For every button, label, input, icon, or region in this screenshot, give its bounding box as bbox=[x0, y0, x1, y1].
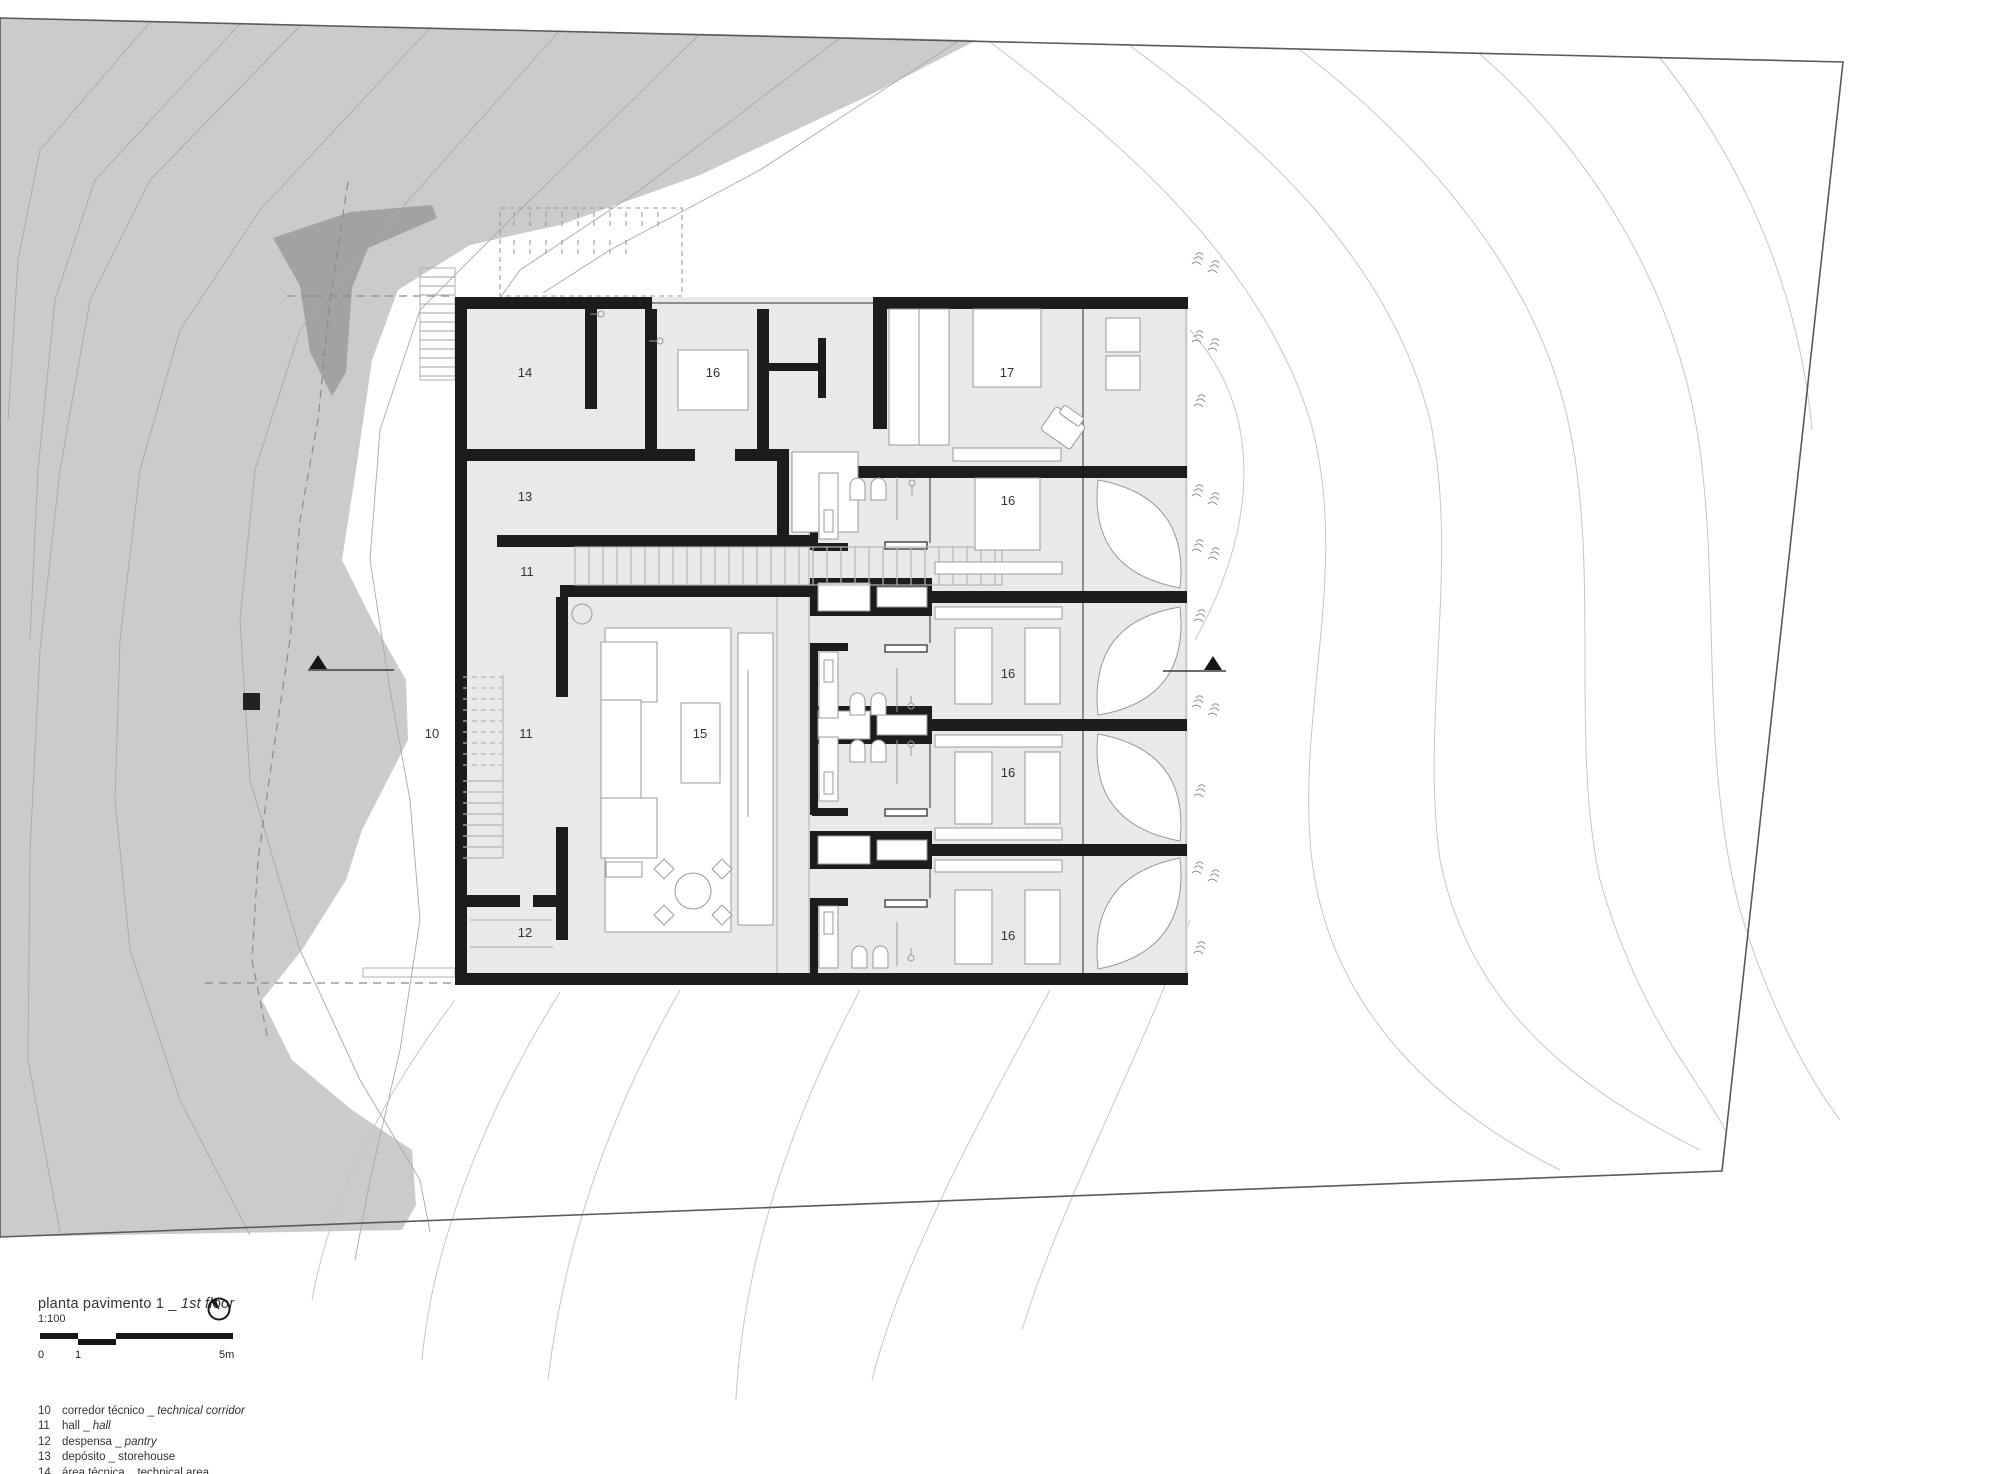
title-block: planta pavimento 1 _ 1st floor 1:100 bbox=[38, 1296, 234, 1325]
drawing-scale: 1:100 bbox=[38, 1313, 234, 1325]
room-label-14: 14 bbox=[518, 365, 532, 380]
legend-item-number: 12 bbox=[38, 1435, 62, 1450]
scale-bar-five: 5m bbox=[219, 1349, 234, 1361]
legend-item-11: 11hall _ hall bbox=[38, 1419, 265, 1434]
room-legend: 10corredor técnico _ technical corridor1… bbox=[38, 1404, 265, 1474]
legend-item-13: 13depósito _ storehouse bbox=[38, 1450, 265, 1465]
legend-item-en: storehouse bbox=[118, 1451, 175, 1463]
room-label-10: 10 bbox=[425, 726, 439, 741]
legend-item-14: 14área técnica _ technical area bbox=[38, 1466, 265, 1474]
legend-item-separator: _ bbox=[80, 1420, 93, 1432]
exterior-step bbox=[363, 968, 455, 977]
legend-item-separator: _ bbox=[125, 1467, 138, 1474]
legend-item-number: 11 bbox=[38, 1419, 62, 1434]
legend-item-separator: _ bbox=[112, 1436, 125, 1448]
room-label-17: 17 bbox=[1000, 365, 1014, 380]
building bbox=[363, 297, 1188, 985]
site-plan-svg: 14161713111610111516161216 bbox=[0, 0, 2000, 1474]
drawing-title-pt: planta pavimento 1 bbox=[38, 1296, 164, 1312]
scale-bar-zero: 0 bbox=[38, 1349, 44, 1361]
legend-item-en: technical area bbox=[137, 1467, 209, 1474]
plants bbox=[1192, 253, 1219, 954]
room-label-11: 11 bbox=[520, 564, 534, 579]
legend-item-pt: depósito bbox=[62, 1451, 105, 1463]
room-label-13: 13 bbox=[518, 489, 532, 504]
tv-cabinet bbox=[738, 633, 773, 925]
room-label-11: 11 bbox=[519, 726, 533, 741]
legend-item-separator: _ bbox=[105, 1451, 118, 1463]
tv-room-furniture bbox=[601, 628, 773, 932]
legend-item-number: 14 bbox=[38, 1466, 62, 1474]
coffee-table bbox=[681, 703, 720, 783]
legend-item-pt: área técnica bbox=[62, 1467, 125, 1474]
room-label-16: 16 bbox=[1001, 493, 1015, 508]
room-label-16: 16 bbox=[1001, 765, 1015, 780]
exterior-stair bbox=[420, 268, 455, 380]
scale-bar: 0 1 5m bbox=[38, 1330, 278, 1362]
legend-item-en: technical corridor bbox=[157, 1405, 245, 1417]
drawing-sheet: 14161713111610111516161216 planta pavime… bbox=[0, 0, 2000, 1474]
legend-item-10: 10corredor técnico _ technical corridor bbox=[38, 1404, 265, 1419]
room-label-12: 12 bbox=[518, 925, 532, 940]
legend-item-separator: _ bbox=[144, 1405, 157, 1417]
legend-item-pt: despensa bbox=[62, 1436, 112, 1448]
legend-item-en: pantry bbox=[125, 1436, 157, 1448]
north-arrow-icon bbox=[206, 1296, 232, 1322]
legend-item-pt: corredor técnico bbox=[62, 1405, 144, 1417]
legend-item-en: hall bbox=[93, 1420, 111, 1432]
room-label-16: 16 bbox=[706, 365, 720, 380]
master-suite-wardrobe bbox=[889, 309, 949, 445]
legend-item-12: 12despensa _ pantry bbox=[38, 1435, 265, 1450]
room-label-16: 16 bbox=[1001, 666, 1015, 681]
survey-mark bbox=[243, 693, 260, 710]
drawing-title: planta pavimento 1 _ 1st floor bbox=[38, 1296, 234, 1312]
dining-table bbox=[675, 873, 711, 909]
room-label-16: 16 bbox=[1001, 928, 1015, 943]
room-label-15: 15 bbox=[693, 726, 707, 741]
scale-bar-one: 1 bbox=[75, 1349, 81, 1361]
legend-item-number: 10 bbox=[38, 1404, 62, 1419]
legend-item-number: 13 bbox=[38, 1450, 62, 1465]
legend-item-pt: hall bbox=[62, 1420, 80, 1432]
